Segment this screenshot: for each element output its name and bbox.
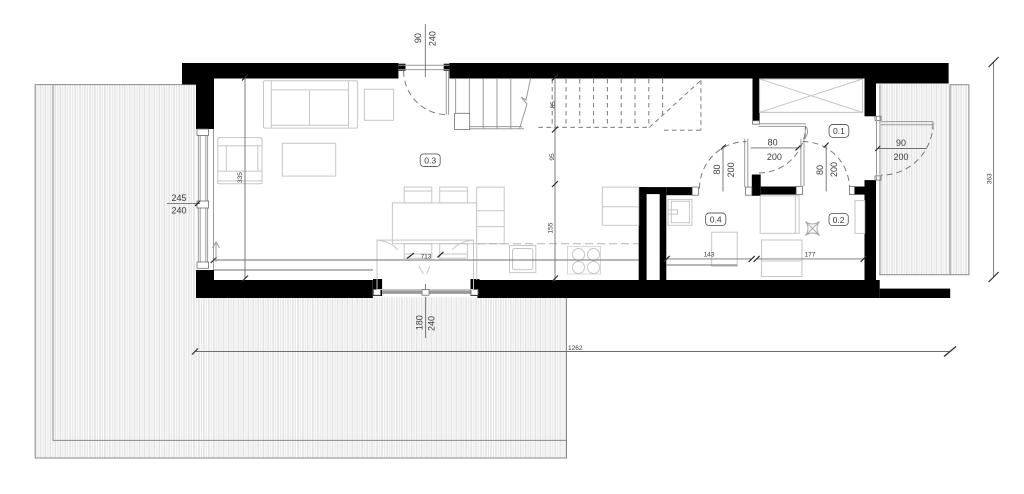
svg-text:90: 90: [896, 138, 906, 148]
svg-text:200: 200: [726, 162, 736, 177]
svg-text:177: 177: [805, 252, 816, 259]
svg-text:200: 200: [893, 152, 908, 162]
svg-text:240: 240: [428, 31, 438, 46]
svg-text:0.4: 0.4: [710, 215, 722, 225]
svg-text:200: 200: [767, 152, 782, 162]
svg-text:240: 240: [171, 206, 186, 216]
svg-text:80: 80: [768, 137, 778, 147]
svg-text:80: 80: [815, 165, 825, 175]
svg-text:180: 180: [414, 315, 424, 330]
svg-text:0.2: 0.2: [833, 215, 845, 225]
svg-text:95: 95: [549, 153, 556, 161]
svg-text:200: 200: [829, 162, 839, 177]
svg-text:713: 713: [421, 253, 432, 260]
svg-text:0.3: 0.3: [424, 156, 436, 166]
svg-text:0.1: 0.1: [833, 126, 845, 136]
svg-text:80: 80: [712, 164, 722, 174]
svg-text:155: 155: [548, 222, 555, 233]
svg-text:335: 335: [237, 172, 244, 183]
svg-text:143: 143: [704, 252, 715, 259]
svg-text:363: 363: [987, 173, 994, 184]
svg-text:245: 245: [171, 193, 186, 203]
svg-text:1262: 1262: [568, 345, 583, 352]
svg-text:90: 90: [413, 33, 423, 43]
svg-text:240: 240: [426, 316, 436, 331]
svg-text:85.: 85.: [550, 99, 557, 108]
